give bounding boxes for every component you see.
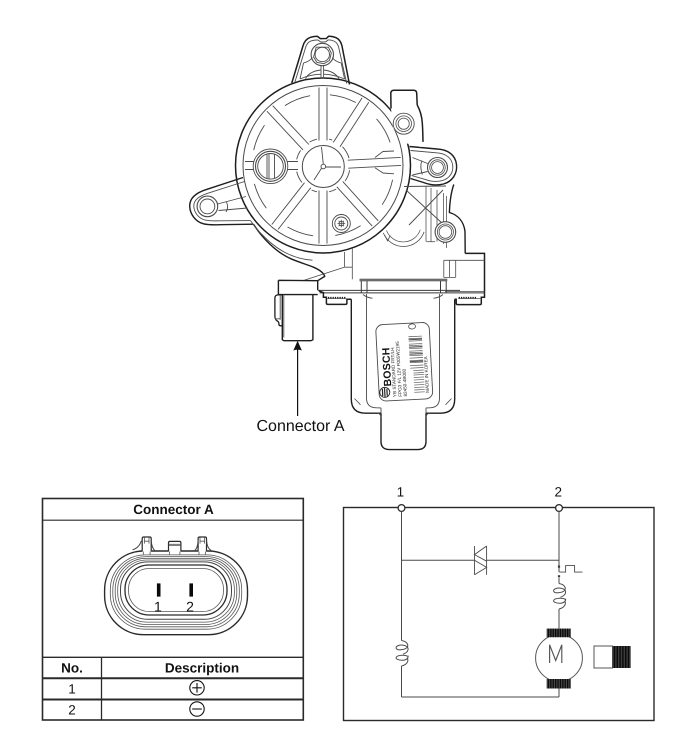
svg-text:Connector A: Connector A — [257, 418, 345, 435]
svg-text:2: 2 — [186, 598, 194, 614]
svg-text:Description: Description — [165, 660, 239, 675]
svg-text:1: 1 — [154, 598, 162, 614]
svg-text:No.: No. — [61, 660, 83, 675]
svg-text:1: 1 — [68, 681, 76, 696]
svg-text:MADE IN KOREA: MADE IN KOREA — [423, 355, 430, 393]
svg-text:2: 2 — [68, 703, 76, 718]
svg-text:1: 1 — [397, 485, 405, 500]
svg-text:82450-4B000: 82450-4B000 — [402, 368, 408, 396]
svg-text:Connector A: Connector A — [133, 502, 214, 517]
svg-text:2: 2 — [555, 485, 563, 500]
